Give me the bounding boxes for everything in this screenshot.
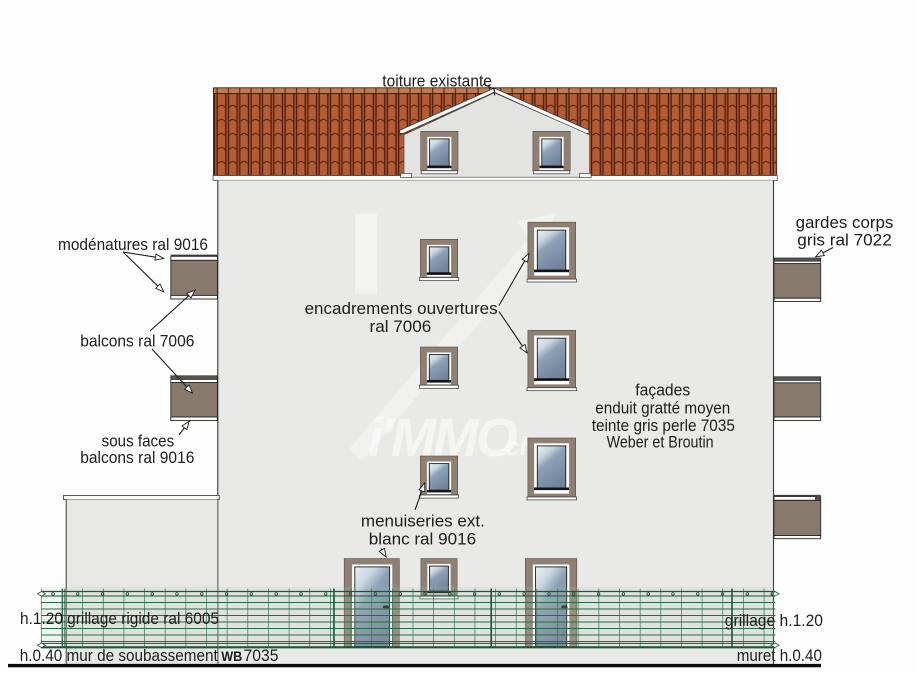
svg-text:encadrements ouvertures: encadrements ouvertures	[305, 300, 498, 318]
svg-text:blanc ral 9016: blanc ral 9016	[369, 531, 476, 549]
svg-text:teinte gris perle 7035: teinte gris perle 7035	[592, 417, 735, 435]
svg-text:h.1.20 grillage rigide ral 600: h.1.20 grillage rigide ral 6005	[20, 610, 219, 628]
svg-text:enduit gratté moyen: enduit gratté moyen	[595, 399, 730, 417]
svg-text:gris ral 7022: gris ral 7022	[797, 232, 892, 250]
svg-text:muret h.0.40: muret h.0.40	[737, 647, 822, 665]
svg-text:Weber et Broutin: Weber et Broutin	[607, 434, 714, 452]
svg-text:7035: 7035	[244, 647, 279, 665]
svg-text:menuiseries ext.: menuiseries ext.	[361, 513, 485, 531]
svg-text:WB: WB	[221, 649, 242, 664]
svg-text:toiture existante: toiture existante	[382, 73, 492, 91]
svg-text:gardes corps: gardes corps	[796, 214, 894, 232]
svg-text:h.0.40 mur de soubassement: h.0.40 mur de soubassement	[20, 647, 218, 665]
svg-text:sous faces: sous faces	[102, 432, 175, 450]
svg-text:modénatures ral 9016: modénatures ral 9016	[58, 236, 208, 254]
svg-text:balcons ral 7006: balcons ral 7006	[80, 333, 194, 351]
svg-text:balcons ral 9016: balcons ral 9016	[80, 449, 194, 467]
svg-text:grillage h.1.20: grillage h.1.20	[725, 612, 823, 630]
svg-text:ral 7006: ral 7006	[370, 318, 432, 336]
svg-text:façades: façades	[635, 381, 690, 399]
